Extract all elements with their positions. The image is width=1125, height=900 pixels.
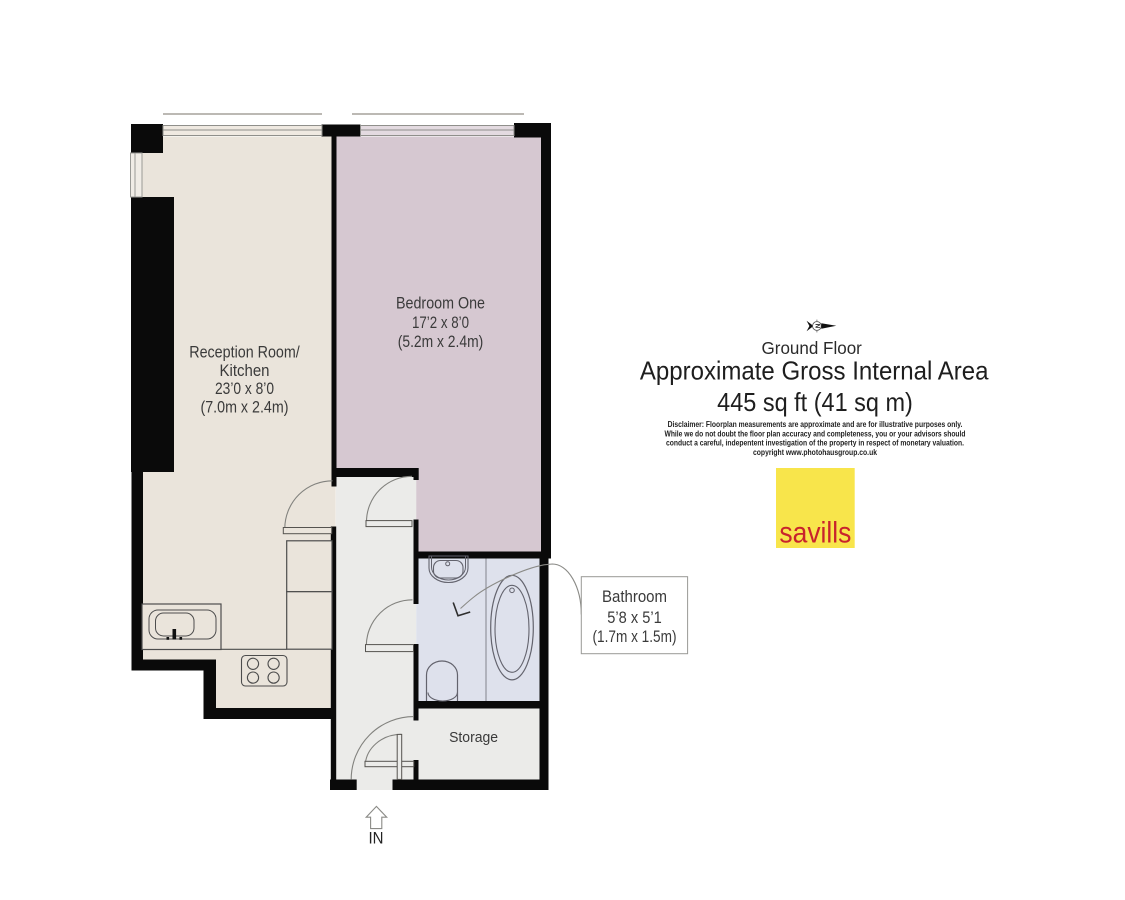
svg-text:Approximate Gross Internal Are: Approximate Gross Internal Area <box>640 356 989 386</box>
svg-text:copyright www.photohausgroup.c: copyright www.photohausgroup.co.uk <box>753 448 877 457</box>
svg-text:(5.2m x 2.4m): (5.2m x 2.4m) <box>398 333 484 351</box>
svg-text:445 sq ft (41 sq m): 445 sq ft (41 sq m) <box>717 387 913 417</box>
svg-text:Kitchen: Kitchen <box>220 362 270 380</box>
svg-text:N: N <box>813 324 820 329</box>
svg-text:conduct a careful, indepentent: conduct a careful, indepentent investiga… <box>666 439 964 448</box>
svg-text:(1.7m x 1.5m): (1.7m x 1.5m) <box>593 628 677 646</box>
svg-text:17’2 x 8’0: 17’2 x 8’0 <box>412 314 469 332</box>
svg-text:5’8 x 5’1: 5’8 x 5’1 <box>607 609 662 627</box>
svg-text:23’0 x 8’0: 23’0 x 8’0 <box>215 380 274 398</box>
svg-text:Storage: Storage <box>449 730 498 746</box>
svg-text:Bathroom: Bathroom <box>602 588 667 606</box>
svg-text:savills: savills <box>779 517 851 550</box>
svg-text:(7.0m x 2.4m): (7.0m x 2.4m) <box>201 398 289 416</box>
svg-text:While we do not doubt the floo: While we do not doubt the floor plan acc… <box>665 429 966 438</box>
svg-text:Bedroom One: Bedroom One <box>396 295 485 313</box>
svg-text:Reception Room/: Reception Room/ <box>189 344 300 362</box>
svg-text:IN: IN <box>369 830 384 848</box>
svg-text:Disclaimer: Floorplan measurem: Disclaimer: Floorplan measurements are a… <box>668 420 963 429</box>
